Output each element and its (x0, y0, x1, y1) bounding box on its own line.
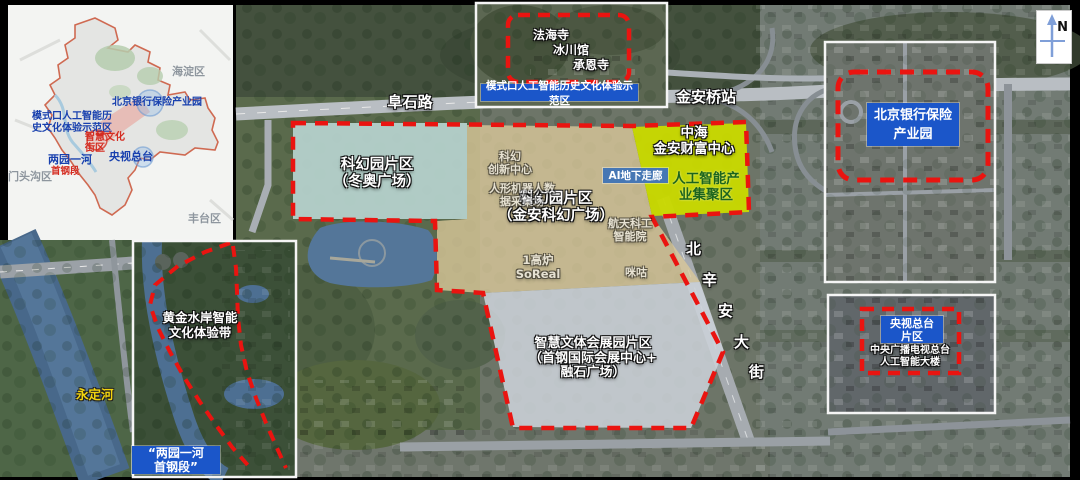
zone-expo-line1: 智慧文体会展园片区 (529, 337, 657, 352)
lake (308, 221, 437, 287)
waterfront-belt-line2: 文化体验带 (162, 325, 237, 340)
district-moshikou-line1: 模式口人工智能历 (32, 111, 112, 123)
compass-n-label: N (1057, 20, 1068, 35)
zone-winter-olympics-label: 科幻园片区 （冬奥广场） (334, 157, 421, 191)
beixinan-street-char-1: 北 (686, 238, 701, 259)
district-mentougou-label: 门头沟区 (8, 168, 52, 184)
poi-furnace-soreal: 1高炉 SoReal (516, 254, 561, 281)
zone-expo-label: 智慧文体会展园片区 （首钢国际会展中心+ 融石广场） (529, 337, 657, 381)
poi-scifi-line1: 科幻 (488, 150, 532, 163)
zone-expo-line3: 融石广场） (529, 366, 657, 381)
chengen-temple-label: 承恩寺 (573, 56, 609, 73)
zone-winter-olympics-line1: 科幻园片区 (334, 157, 421, 174)
beixinan-street-char-2: 辛 (702, 269, 717, 290)
beixinan-street-char-4: 大 (734, 331, 749, 352)
bank-park-line1: 北京银行保险 (867, 106, 959, 125)
bank-park-line2: 产业园 (867, 125, 959, 144)
district-haidian-label: 海淀区 (172, 63, 205, 79)
zhonghai-line2: 金安财富中心 (654, 142, 735, 158)
yongding-river-label: 永定河 (76, 384, 114, 403)
poi-scifi-innovation-center: 科幻 创新中心 (488, 150, 532, 176)
ai-cluster-label: 人工智能产 业集聚区 (672, 172, 740, 203)
waterfront-belt-label: 黄金水岸智能 文化体验带 (162, 310, 237, 340)
cctv-zone-line2: 片区 (881, 330, 943, 343)
poi-migu: 咪咕 (625, 264, 647, 280)
cctv-sub-label: 中央广播电视总台 人工智能大楼 (870, 345, 950, 368)
waterfront-belt-inset (133, 241, 296, 477)
ai-cluster-line1: 人工智能产 (672, 172, 740, 188)
district-fengtai-label: 丰台区 (188, 210, 221, 226)
bank-park-inset (825, 42, 995, 282)
cctv-sub-line1: 中央广播电视总台 (870, 345, 950, 357)
poi-scifi-line2: 创新中心 (488, 163, 532, 176)
cctv-zone-badge: 央视总台 片区 (881, 316, 943, 343)
cctv-zone-line1: 央视总台 (881, 317, 943, 330)
cctv-sub-line2: 人工智能大楼 (870, 357, 950, 369)
beixinan-street-char-5: 街 (749, 361, 764, 382)
shougang-segment-line1: “两园一河 (132, 446, 220, 460)
north-arrow-icon (1037, 11, 1071, 63)
poi-furnace-line2: SoReal (516, 268, 561, 282)
poi-aerospace-institute: 航天科工 智能院 (608, 217, 652, 243)
ai-cluster-line2: 业集聚区 (672, 188, 740, 204)
zone-expo-line2: （首钢国际会展中心+ (529, 352, 657, 367)
zone-scifi-line2: （金安科幻广场） (498, 208, 614, 225)
compass: N (1036, 10, 1072, 64)
poi-aero-line1: 航天科工 (608, 217, 652, 230)
district-cctv-label: 央视总台 (109, 148, 153, 164)
zhonghai-line1: 中海 (654, 126, 735, 142)
waterfront-belt-line1: 黄金水岸智能 (162, 310, 237, 325)
poi-robot-line1: 人形机器人数 (489, 182, 555, 195)
shougang-segment-badge: “两园一河 首钢段” (132, 446, 220, 474)
district-culture-line1: 智慧文化 (85, 132, 125, 143)
poi-robot-line2: 据采集场 (489, 195, 555, 208)
poi-aero-line2: 智能院 (608, 230, 652, 243)
river-aerial-strip (0, 240, 133, 477)
poi-robot-data-site: 人形机器人数 据采集场 (489, 182, 555, 208)
beixinan-street-char-3: 安 (718, 300, 733, 321)
jinanqiao-station-label: 金安桥站 (676, 86, 736, 107)
ai-underground-corridor-label: AI地下走廊 (603, 168, 668, 183)
zhonghai-center-label: 中海 金安财富中心 (654, 126, 735, 157)
district-bank-park-label: 北京银行保险产业园 (112, 93, 202, 108)
poi-furnace-line1: 1高炉 (516, 254, 561, 268)
district-shougang-label: 首钢段 (51, 163, 80, 177)
moshikou-banner-label: 模式口人工智能历史文化体验示范区 (481, 78, 638, 108)
planning-map: 阜石路 金安桥站 北 辛 安 大 街 科幻园片区 （冬奥广场） 科幻园片区 （金… (0, 0, 1080, 480)
shougang-segment-line2: 首钢段” (132, 460, 220, 474)
map-artwork (0, 0, 1080, 480)
zone-winter-olympics-line2: （冬奥广场） (334, 174, 421, 191)
moshikou-banner: 模式口人工智能历史文化体验示范区 (481, 84, 638, 101)
ai-underground-corridor-badge: AI地下走廊 (603, 168, 668, 183)
fushi-road-label: 阜石路 (387, 91, 432, 112)
bank-park-badge: 北京银行保险 产业园 (867, 103, 959, 146)
